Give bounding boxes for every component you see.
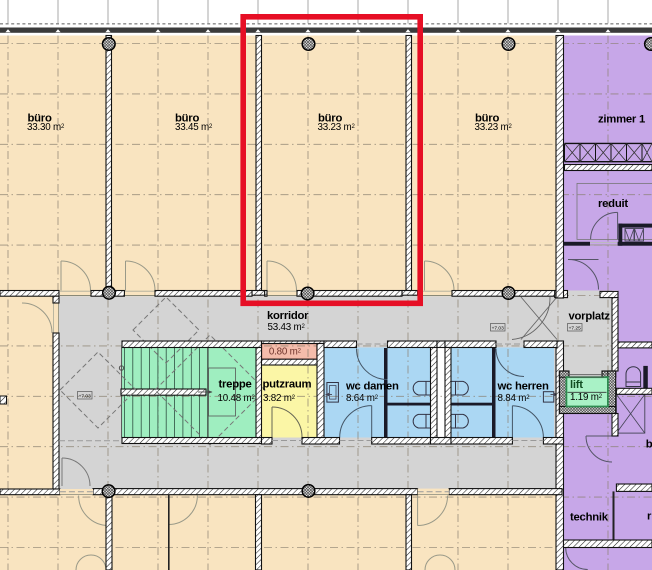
svg-text:8.64 m2: 8.64 m2 [346,393,379,404]
svg-text:korridor: korridor [267,310,309,322]
svg-text:10.48 m2: 10.48 m2 [218,393,256,404]
svg-text:wc damen: wc damen [345,381,399,393]
svg-text:8.84 m2: 8.84 m2 [498,393,531,404]
svg-text:+7.25: +7.25 [569,325,581,331]
svg-text:33.45 m2: 33.45 m2 [175,122,213,133]
svg-text:33.30 m2: 33.30 m2 [27,122,65,133]
svg-text:technik: technik [570,512,609,524]
svg-text:+7.03: +7.03 [79,393,91,399]
svg-text:1.19 m2: 1.19 m2 [570,392,603,403]
svg-text:zimmer 1: zimmer 1 [598,113,645,125]
svg-text:33.23 m2: 33.23 m2 [318,122,356,133]
svg-text:treppe: treppe [219,379,252,391]
svg-text:53.43 m2: 53.43 m2 [268,322,306,333]
svg-text:putzraum: putzraum [263,379,312,391]
svg-text:3.82 m2: 3.82 m2 [263,393,296,404]
svg-text:33.23 m2: 33.23 m2 [475,122,513,133]
svg-text:wc herren: wc herren [497,381,549,393]
svg-text:+7.03: +7.03 [492,325,504,331]
svg-text:lift: lift [570,379,583,391]
svg-text:reduit: reduit [598,198,628,210]
svg-text:0.80 m2: 0.80 m2 [269,346,302,357]
svg-text:vorplatz: vorplatz [569,311,611,323]
svg-text:b: b [646,439,652,451]
